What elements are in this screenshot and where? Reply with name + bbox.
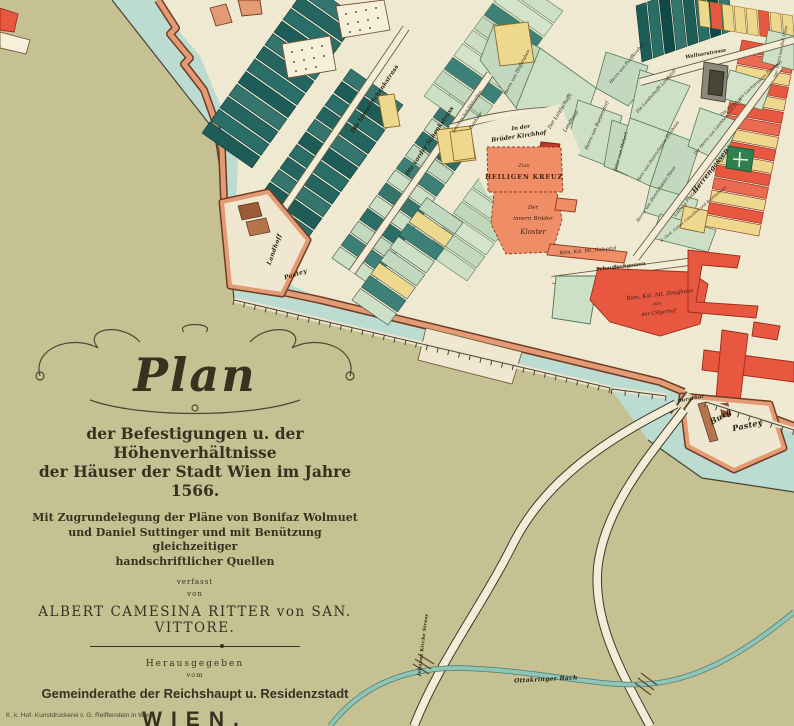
credit-line-3: handschriftlicher Quellen xyxy=(26,555,364,570)
dark-parcel xyxy=(708,70,724,96)
credit-line-1: Mit Zugrundelegung der Pläne von Bonifaz… xyxy=(26,511,364,526)
garden-tree-dot xyxy=(305,68,307,70)
garden-tree-dot xyxy=(321,45,323,47)
verfasst-label: verfasst xyxy=(26,577,364,587)
subtitle-line-1: der Befestigungen u. der Höhenverhältnis… xyxy=(26,424,364,462)
garden-tree-dot xyxy=(345,13,347,15)
kreuz-church xyxy=(487,147,563,192)
wall-bit-2 xyxy=(238,0,262,16)
palisade-tick xyxy=(625,391,626,396)
author-line: ALBERT CAMESINA RITTER von SAN. VITTORE. xyxy=(26,604,364,636)
map-label: HEILIGEN KREUZ xyxy=(485,173,563,181)
garden-tree-dot xyxy=(377,17,379,19)
garden-tree-dot xyxy=(369,27,371,29)
garden-tree-dot xyxy=(323,55,325,57)
garden-tree-dot xyxy=(315,66,317,68)
map-title: Plan xyxy=(26,320,364,402)
garden-tree-dot xyxy=(295,70,297,72)
garden-tree-dot xyxy=(365,9,367,11)
garden-tree-dot xyxy=(359,29,361,31)
credit-line-2: und Daniel Suttinger und mit Benützung g… xyxy=(26,526,364,555)
block-ne-yellow-parcel xyxy=(698,0,711,28)
printer-imprint: K. k. Hof- Kunstdruckerei v. G. Reiffens… xyxy=(6,712,155,719)
von-label: von xyxy=(26,589,364,599)
map-page: Die hinter SchenkstrassDie vorder Schenk… xyxy=(0,0,794,726)
garden-tree-dot xyxy=(355,11,357,13)
map-label: Der xyxy=(527,205,539,211)
garden-tree-dot xyxy=(291,51,293,53)
yellow-parcel-4 xyxy=(450,129,475,161)
block-ne-yellow-parcel xyxy=(722,4,735,32)
palisade-tick xyxy=(652,394,653,399)
garden-tree-dot xyxy=(357,21,359,23)
cartouche-divider xyxy=(90,646,300,647)
vom-label: vom xyxy=(26,671,364,679)
block-ne-yellow-parcel xyxy=(746,8,759,36)
garden-tree-dot xyxy=(367,19,369,21)
garden-tree-dot xyxy=(313,57,315,59)
map-label: Kloster xyxy=(519,228,546,236)
yellow-parcel-3 xyxy=(494,22,534,66)
garden-tree-dot xyxy=(311,47,313,49)
block-ne-yellow-parcel xyxy=(734,6,747,34)
garden-tree-dot xyxy=(347,23,349,25)
subtitle-line-2: der Häuser der Stadt Wien im Jahre 1566. xyxy=(26,462,364,500)
garden-tree-dot xyxy=(375,7,377,9)
herausgegeben-label: Herausgegeben xyxy=(26,659,364,669)
block-ne-yellow-parcel xyxy=(710,2,723,30)
palisade-tick xyxy=(638,393,639,398)
garden-tree-dot xyxy=(293,61,295,63)
palisade-tick xyxy=(611,389,612,394)
publisher-line: Gemeinderathe der Reichshaupt u. Residen… xyxy=(26,686,364,701)
kloster-annex xyxy=(555,198,577,212)
palisade-tick xyxy=(665,396,666,401)
garden-tree-dot xyxy=(349,31,351,33)
garden-plot-1 xyxy=(282,36,336,78)
garden-tree-dot xyxy=(303,59,305,61)
garden-tree-dot xyxy=(301,49,303,51)
map-label: Zum xyxy=(517,163,530,169)
map-label: innern Brüder xyxy=(513,216,553,222)
title-cartouche: Plan der Befestigungen u. der Höhenverhä… xyxy=(26,320,364,726)
